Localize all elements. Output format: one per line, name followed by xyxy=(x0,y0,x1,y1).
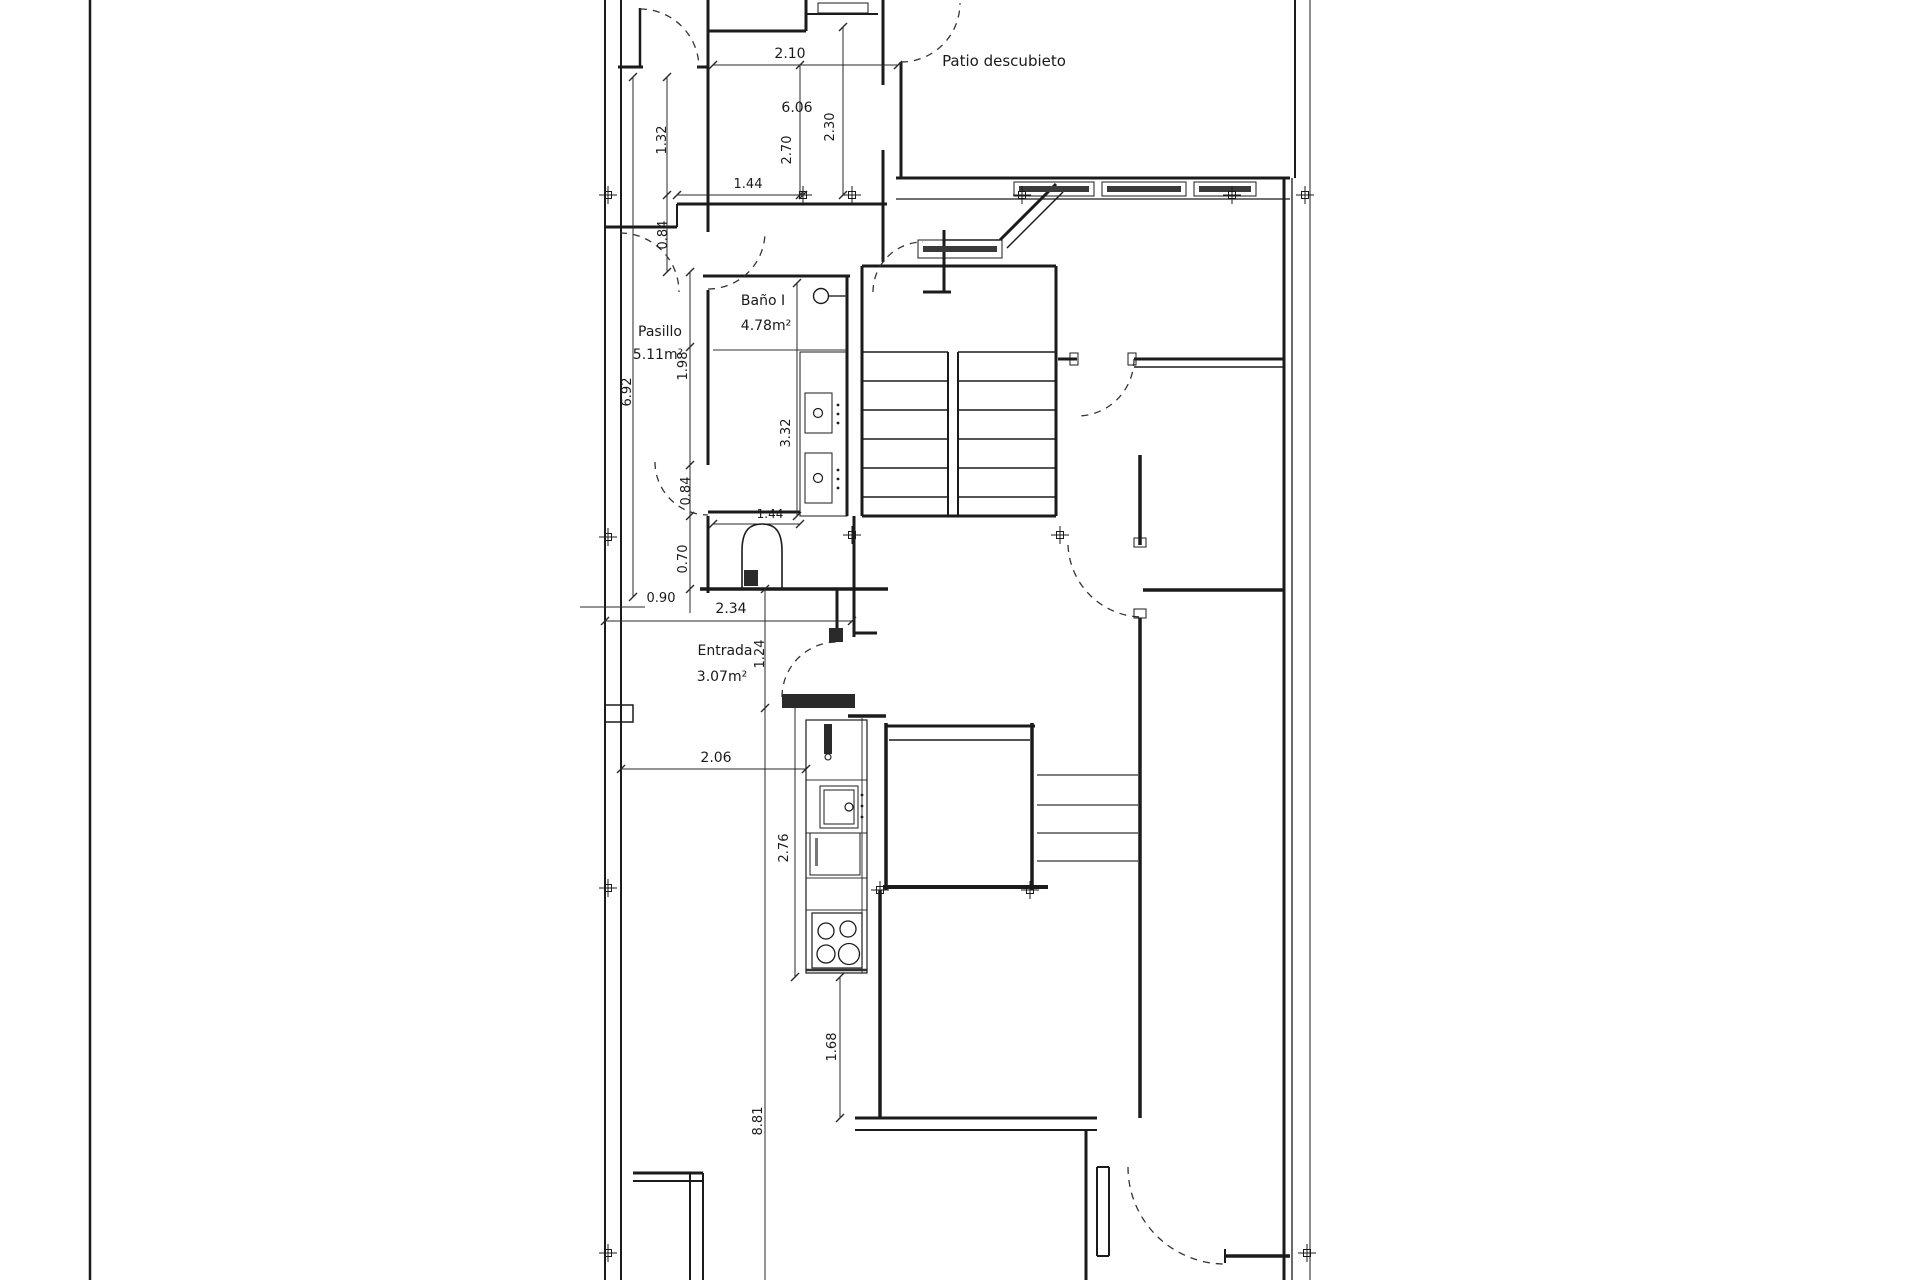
fixture-fill xyxy=(923,246,997,252)
fixture-fill xyxy=(815,838,818,866)
door-swing-arc xyxy=(1128,1167,1225,1264)
fixture-fill xyxy=(829,628,843,642)
room-label-entrada-area: 3.07m² xyxy=(697,669,747,685)
floorplan-drawing: Patio descubietoBaño I4.78m²Pasillo5.11m… xyxy=(0,0,1920,1280)
fixture-circle xyxy=(814,289,829,304)
dim-label-d276: 2.76 xyxy=(777,834,792,863)
fixture-fill xyxy=(1019,186,1089,192)
fixture-outline xyxy=(800,352,847,516)
dim-label-d132: 1.32 xyxy=(655,126,670,155)
fixture-circle xyxy=(839,944,860,965)
fixture-circle xyxy=(837,413,840,416)
fixture-outline xyxy=(805,453,832,503)
dim-label-d168: 1.68 xyxy=(825,1033,840,1062)
floorplan-page: Patio descubietoBaño I4.78m²Pasillo5.11m… xyxy=(0,0,1920,1280)
fixture-outline xyxy=(805,393,832,433)
dim-label-d692: 6.92 xyxy=(620,378,635,407)
dim-label-d084a: 0.84 xyxy=(656,221,671,250)
dim-label-d070: 0.70 xyxy=(676,545,691,574)
fixture-outline xyxy=(824,790,854,824)
door-swing-arc xyxy=(782,642,837,697)
fixture-circle xyxy=(818,923,834,939)
fixture-circle xyxy=(837,487,840,490)
door-swing-arc xyxy=(1077,359,1134,416)
fixture-fill xyxy=(782,694,855,708)
fixture-circle xyxy=(861,794,864,797)
fixture-circle xyxy=(845,803,853,811)
fixture-circle xyxy=(817,945,835,963)
dim-label-d270: 2.70 xyxy=(780,136,795,165)
room-label-entrada-name: Entrada xyxy=(697,643,752,659)
fixture-circle xyxy=(861,805,864,808)
room-label-bano-name: Baño I xyxy=(741,293,785,309)
fixture-circle xyxy=(837,422,840,425)
fixture-fill xyxy=(1107,186,1181,192)
fixture-fill xyxy=(877,85,889,150)
door-swing-arc xyxy=(640,9,699,68)
dim-label-d230: 2.30 xyxy=(823,113,838,142)
fixture-circle xyxy=(837,478,840,481)
dim-label-d881: 8.81 xyxy=(751,1107,766,1136)
dim-label-d332: 3.32 xyxy=(779,419,794,448)
dim-label-d084b: 0.84 xyxy=(679,477,694,506)
fixture-outline xyxy=(605,705,633,722)
fixture-circle xyxy=(840,921,856,937)
room-label-pasillo-name: Pasillo xyxy=(638,324,682,340)
dim-label-d198: 1.98 xyxy=(676,352,691,381)
room-label-patio: Patio descubieto xyxy=(942,52,1066,70)
fixture-fill xyxy=(744,570,758,586)
fixture-circle xyxy=(814,409,823,418)
fixture-circle xyxy=(837,404,840,407)
wall xyxy=(1007,192,1063,248)
fixture-circle xyxy=(825,754,831,760)
room-label-bano-area: 4.78m² xyxy=(741,318,791,334)
dim-label-d144a: 1.44 xyxy=(734,177,763,192)
fixture-outline xyxy=(818,3,868,13)
fixture-circle xyxy=(861,816,864,819)
fixture-outline xyxy=(820,786,858,828)
dim-label-d210: 2.10 xyxy=(774,46,805,62)
wall xyxy=(1000,184,1056,240)
fixture-fill xyxy=(824,724,832,754)
dim-label-d206: 2.06 xyxy=(700,750,731,766)
fixture-circle xyxy=(814,474,823,483)
fixture-fill xyxy=(1199,186,1251,192)
door-swing-arc xyxy=(708,232,765,289)
fixture-circle xyxy=(837,469,840,472)
dim-label-d234: 2.34 xyxy=(715,601,746,617)
door-swing-arc xyxy=(1068,545,1140,617)
dim-label-d144b: 1.44 xyxy=(757,507,784,521)
dim-label-d124: 1.24 xyxy=(753,640,768,669)
dim-label-d090: 0.90 xyxy=(647,591,676,606)
dim-label-d606: 6.06 xyxy=(781,100,812,116)
